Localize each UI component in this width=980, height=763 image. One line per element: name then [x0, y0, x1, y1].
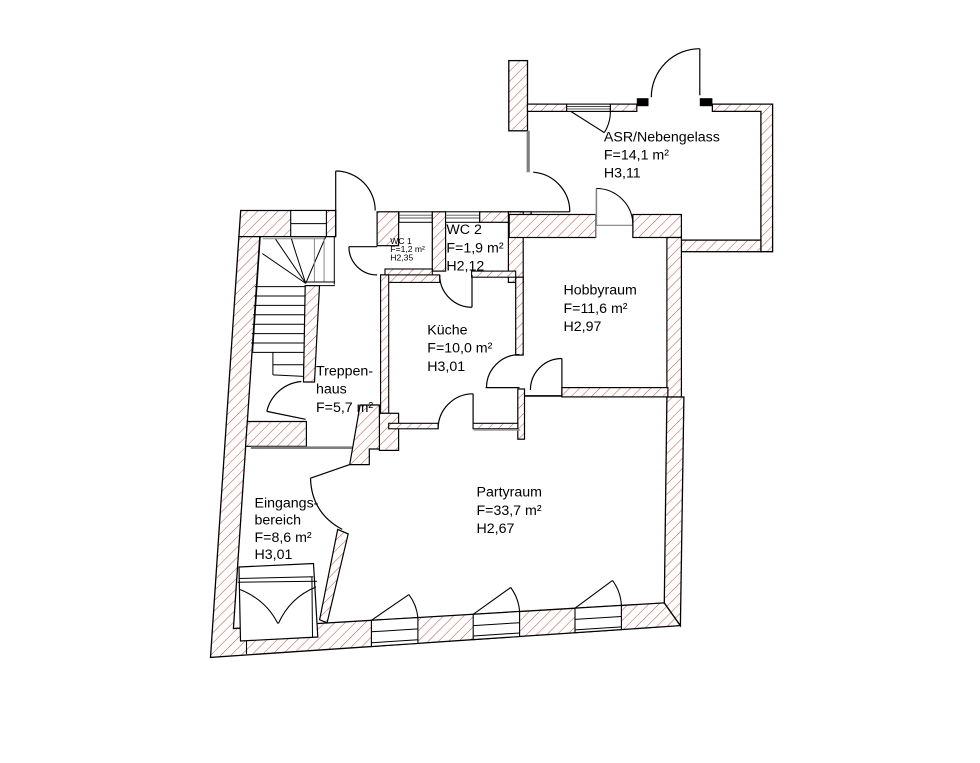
svg-text:haus: haus: [316, 382, 347, 398]
svg-text:WC 2: WC 2: [446, 222, 482, 238]
svg-text:F=10,0 m²: F=10,0 m²: [427, 341, 492, 357]
svg-text:Treppen-: Treppen-: [316, 363, 373, 379]
svg-text:H3,01: H3,01: [427, 359, 465, 375]
svg-text:Eingangs-: Eingangs-: [255, 496, 319, 512]
svg-text:Partyraum: Partyraum: [477, 485, 542, 501]
svg-text:H2,67: H2,67: [477, 521, 515, 537]
svg-text:H3,11: H3,11: [604, 166, 641, 182]
svg-text:bereich: bereich: [255, 513, 302, 529]
svg-text:Küche: Küche: [427, 322, 467, 338]
svg-text:H2,97: H2,97: [564, 319, 602, 335]
svg-text:F=1,9 m²: F=1,9 m²: [446, 240, 503, 256]
svg-text:ASR/Nebengelass: ASR/Nebengelass: [604, 130, 720, 146]
svg-text:Hobbyraum: Hobbyraum: [564, 283, 637, 299]
svg-text:F=33,7 m²: F=33,7 m²: [477, 503, 542, 519]
svg-text:F=14,1 m²: F=14,1 m²: [604, 148, 669, 164]
svg-text:F=5,7 m²: F=5,7 m²: [316, 400, 373, 416]
svg-text:H2,35: H2,35: [390, 252, 413, 262]
svg-text:H3,01: H3,01: [255, 547, 293, 563]
svg-text:H2,12: H2,12: [446, 259, 484, 275]
svg-text:F=8,6 m²: F=8,6 m²: [255, 530, 312, 546]
svg-text:F=11,6 m²: F=11,6 m²: [564, 301, 628, 317]
